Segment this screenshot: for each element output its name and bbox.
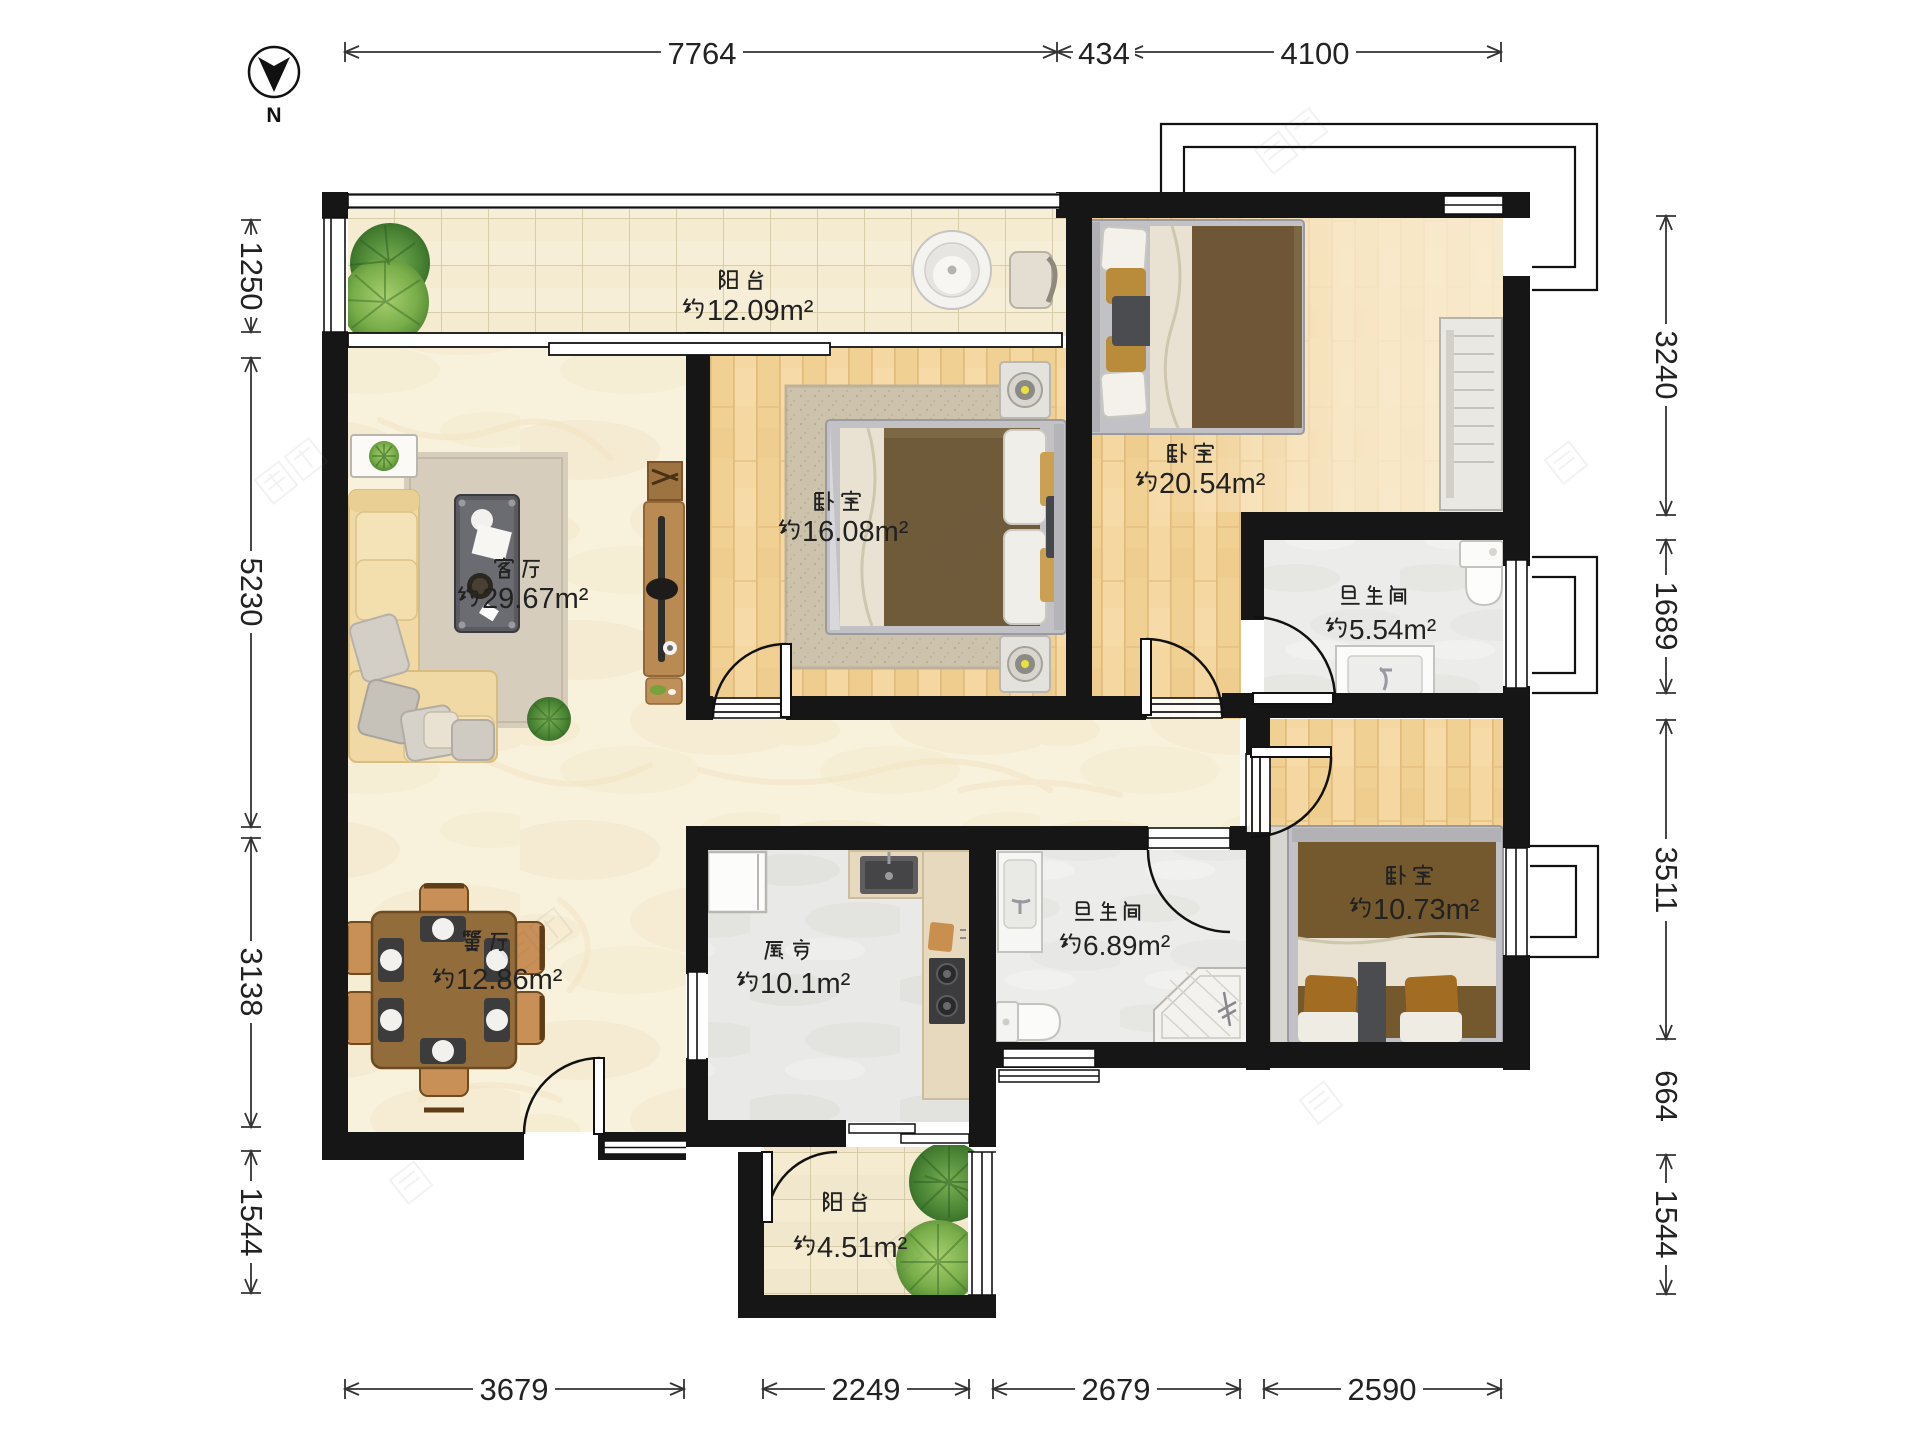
- svg-text:1689: 1689: [1649, 582, 1684, 651]
- svg-text:12.86m²: 12.86m²: [456, 964, 563, 996]
- svg-text:7764: 7764: [668, 36, 737, 71]
- svg-text:N: N: [266, 104, 281, 127]
- svg-text:3138: 3138: [234, 948, 269, 1017]
- svg-text:2249: 2249: [832, 1372, 901, 1407]
- svg-text:3511: 3511: [1649, 847, 1684, 914]
- svg-text:3240: 3240: [1649, 331, 1684, 400]
- svg-text:10.73m²: 10.73m²: [1373, 894, 1480, 926]
- svg-text:6.89m²: 6.89m²: [1083, 930, 1170, 961]
- svg-text:3679: 3679: [480, 1372, 549, 1407]
- svg-text:1544: 1544: [234, 1188, 269, 1257]
- svg-text:434: 434: [1078, 36, 1130, 71]
- svg-text:10.1m²: 10.1m²: [760, 968, 851, 1000]
- svg-text:664: 664: [1649, 1070, 1684, 1122]
- svg-text:29.67m²: 29.67m²: [482, 583, 589, 615]
- svg-text:12.09m²: 12.09m²: [707, 295, 814, 327]
- svg-text:4100: 4100: [1281, 36, 1350, 71]
- svg-text:20.54m²: 20.54m²: [1159, 468, 1266, 500]
- svg-text:2679: 2679: [1082, 1372, 1151, 1407]
- svg-text:2590: 2590: [1348, 1372, 1417, 1407]
- svg-text:16.08m²: 16.08m²: [802, 516, 909, 548]
- svg-text:1544: 1544: [1649, 1190, 1684, 1259]
- svg-text:1250: 1250: [234, 242, 269, 311]
- svg-text:5.54m²: 5.54m²: [1349, 614, 1436, 645]
- svg-text:5230: 5230: [234, 558, 269, 627]
